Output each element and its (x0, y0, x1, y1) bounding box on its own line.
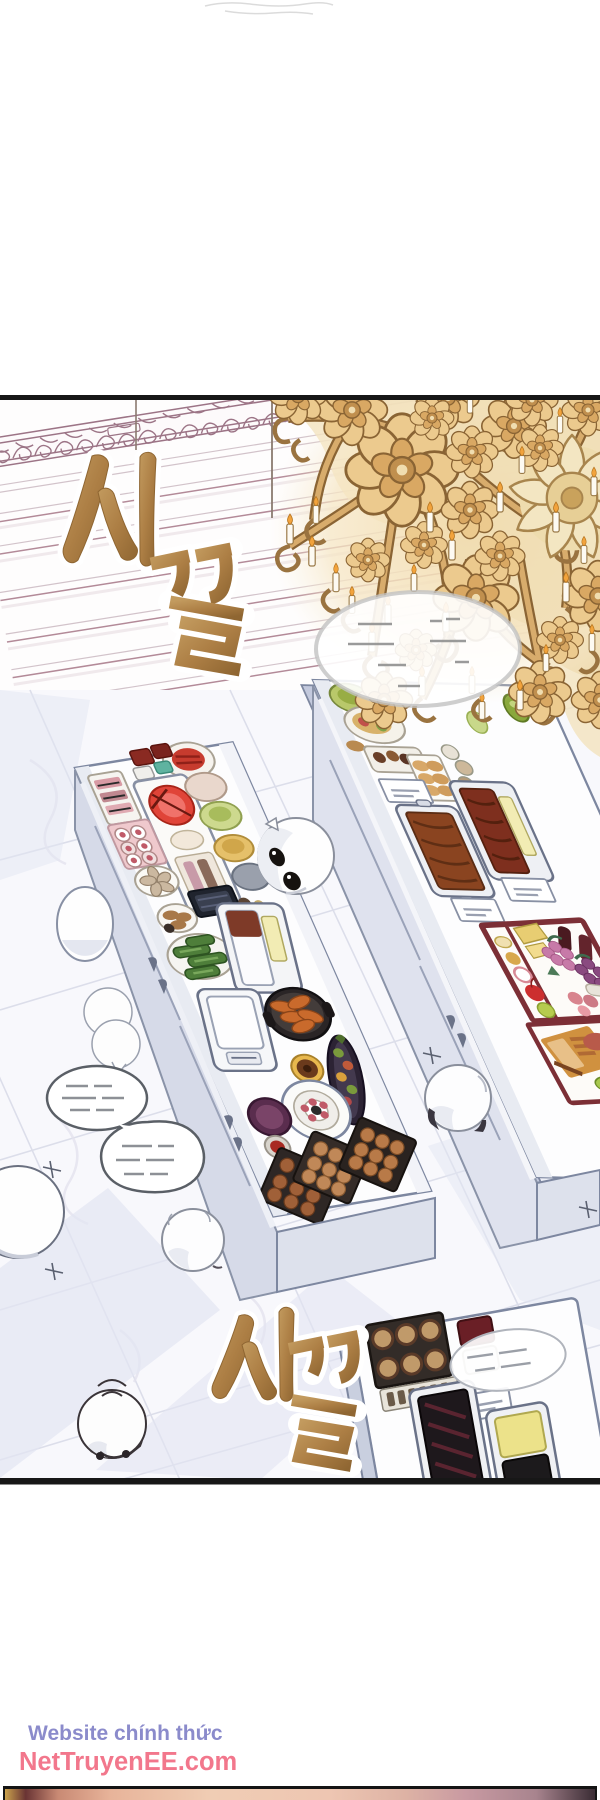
svg-text:Website chính thức: Website chính thức (28, 1722, 223, 1745)
svg-text:NetTruyenEE.com: NetTruyenEE.com (19, 1748, 237, 1776)
